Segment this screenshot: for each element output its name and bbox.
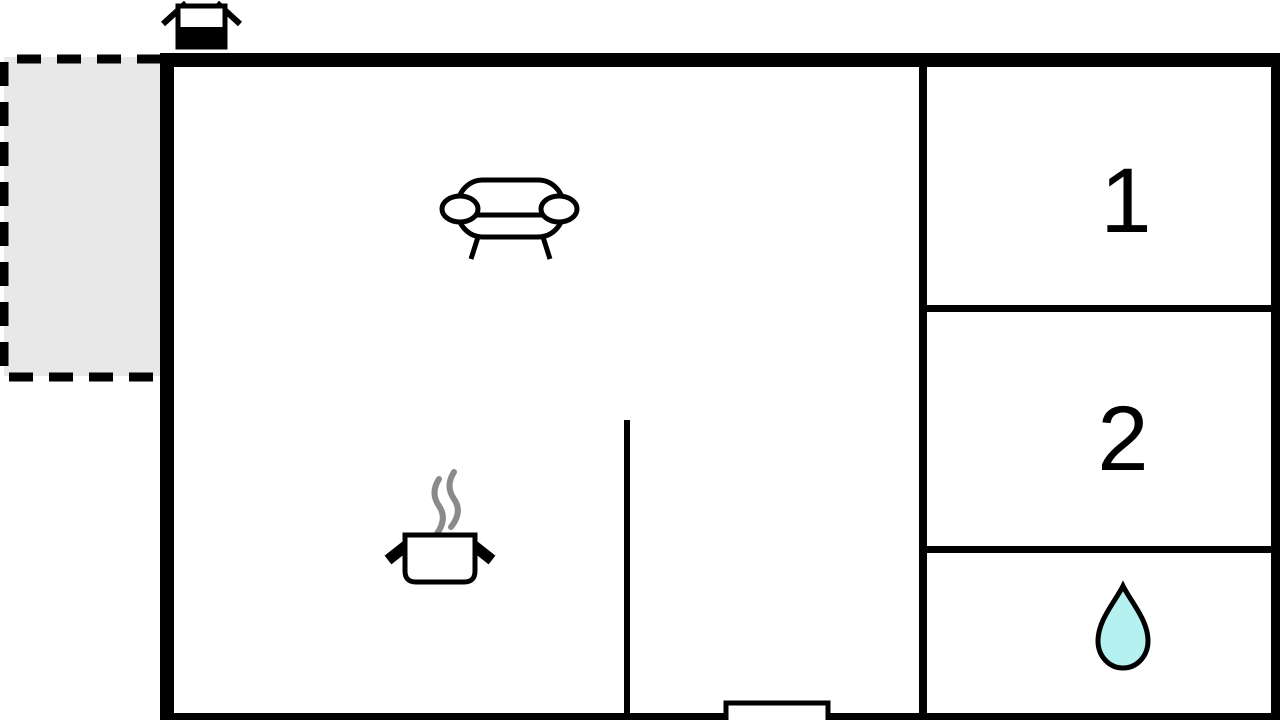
- wall-room1-room2-divider: [921, 305, 1280, 312]
- wall-left: [160, 53, 174, 720]
- wall-bedrooms-left: [919, 63, 927, 715]
- terrace-fill: [4, 57, 161, 376]
- wall-right: [1271, 53, 1280, 720]
- room-2-label: 2: [1097, 388, 1148, 490]
- bedroom-1-area: [927, 67, 1271, 305]
- pot-body: [405, 535, 475, 582]
- floor-plan-svg: 1 2: [0, 0, 1280, 720]
- living-room-area: [174, 67, 919, 713]
- bedroom-1: 1: [927, 67, 1271, 305]
- chimney-icon: [163, 3, 240, 47]
- bathroom: [927, 553, 1271, 713]
- wall-top: [160, 53, 1280, 67]
- chimney-box-fill: [177, 27, 226, 47]
- sofa-armrest-right: [541, 196, 577, 222]
- floor-plan: 1 2: [0, 0, 1280, 720]
- wall-bottom-left-segment: [160, 713, 728, 720]
- sofa-armrest-left: [442, 196, 478, 222]
- room-1-label: 1: [1100, 150, 1151, 252]
- bedroom-2: 2: [927, 312, 1271, 546]
- terrace-area: [4, 57, 161, 377]
- wall-bottom-right-segment: [824, 713, 1280, 720]
- wall-room2-bath-divider: [921, 546, 1280, 553]
